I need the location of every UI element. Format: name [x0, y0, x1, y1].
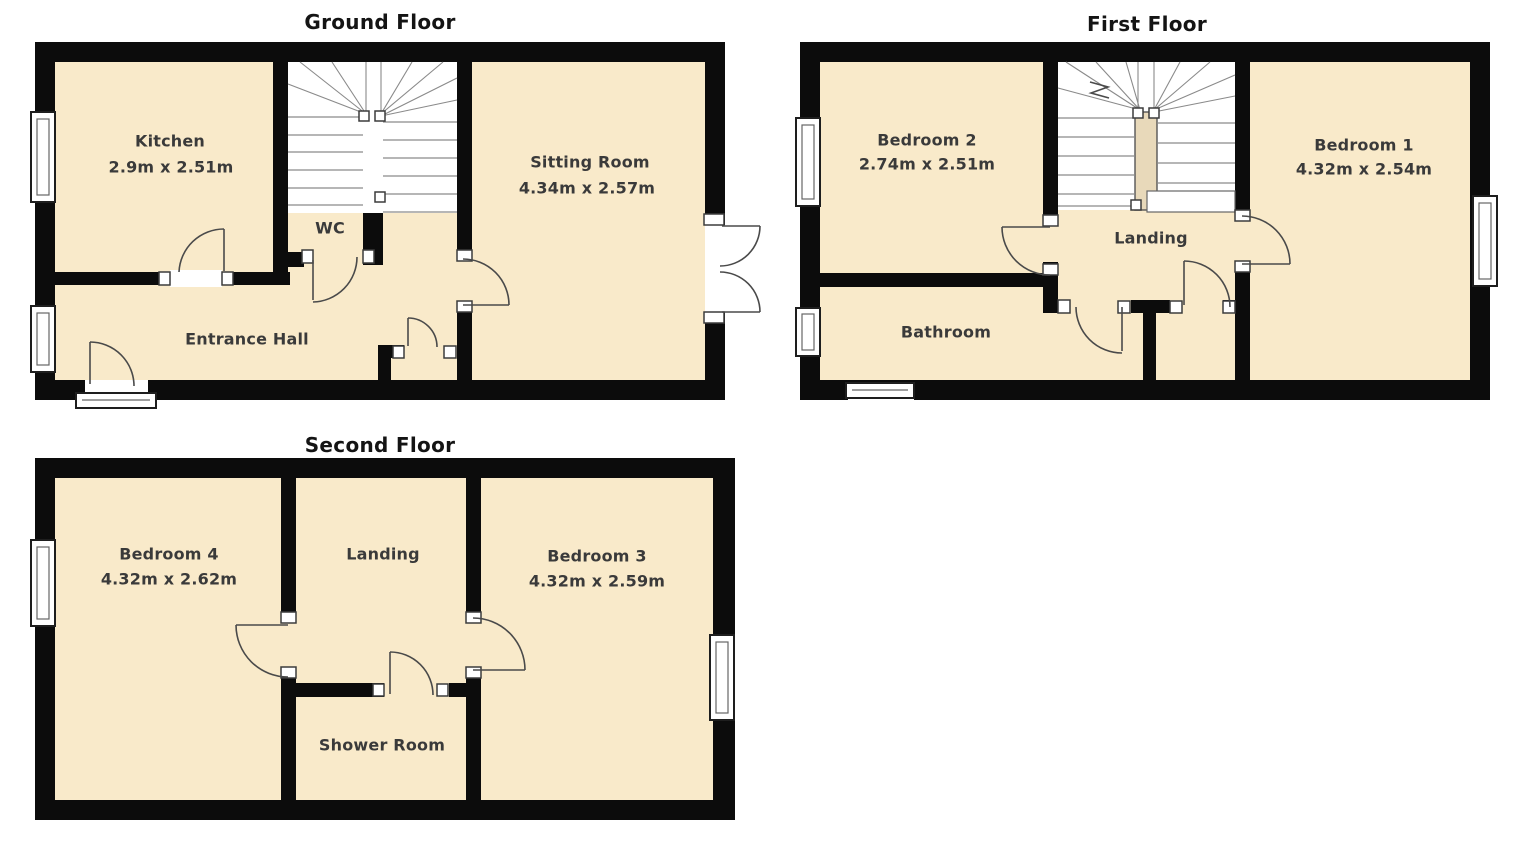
ground-floor-staircase [288, 62, 457, 213]
hall-window-icon [31, 306, 55, 372]
ground-floor-plan [0, 0, 790, 430]
bathroom-vent-window-icon [846, 383, 914, 398]
room-label-shower-room: Shower Room [319, 736, 445, 755]
ground-floor-title: Ground Floor [304, 10, 455, 34]
room-label-bedroom-3: Bedroom 3 [547, 547, 647, 566]
room-dims-bedroom-3: 4.32m x 2.59m [529, 572, 665, 591]
second-floor-title: Second Floor [305, 433, 456, 457]
room-dims-sitting-room: 4.34m x 2.57m [519, 179, 655, 198]
room-dims-bedroom-4: 4.32m x 2.62m [101, 570, 237, 589]
first-floor-staircase [1058, 62, 1235, 212]
room-dims-bedroom-2: 2.74m x 2.51m [859, 155, 995, 174]
room-label-bathroom: Bathroom [901, 323, 991, 342]
bedroom1-window-icon [1473, 196, 1497, 286]
room-label-kitchen: Kitchen [135, 132, 205, 151]
room-label-bedroom-4: Bedroom 4 [119, 545, 219, 564]
room-dims-bedroom-1: 4.32m x 2.54m [1296, 160, 1432, 179]
floorplan-canvas: Ground Floor First Floor Second Floor Ki… [0, 0, 1523, 847]
room-label-wc: WC [315, 219, 345, 238]
second-floor-structure [35, 458, 735, 820]
room-label-bedroom-2: Bedroom 2 [877, 131, 977, 150]
room-label-sitting-room: Sitting Room [530, 153, 650, 172]
room-label-entrance-hall: Entrance Hall [185, 330, 309, 349]
room-label-landing-first: Landing [1114, 229, 1188, 248]
second-floor-plan [0, 430, 790, 847]
first-floor-title: First Floor [1087, 12, 1207, 36]
bedroom2-window-icon [796, 118, 820, 206]
room-label-bedroom-1: Bedroom 1 [1314, 136, 1414, 155]
bedroom4-window-icon [31, 540, 55, 626]
room-dims-kitchen: 2.9m x 2.51m [108, 158, 233, 177]
kitchen-window-icon [31, 112, 55, 202]
first-floor-plan [790, 0, 1523, 430]
bedroom3-window-icon [710, 635, 734, 720]
room-label-landing-second: Landing [346, 545, 420, 564]
bathroom-window-icon [796, 308, 820, 356]
